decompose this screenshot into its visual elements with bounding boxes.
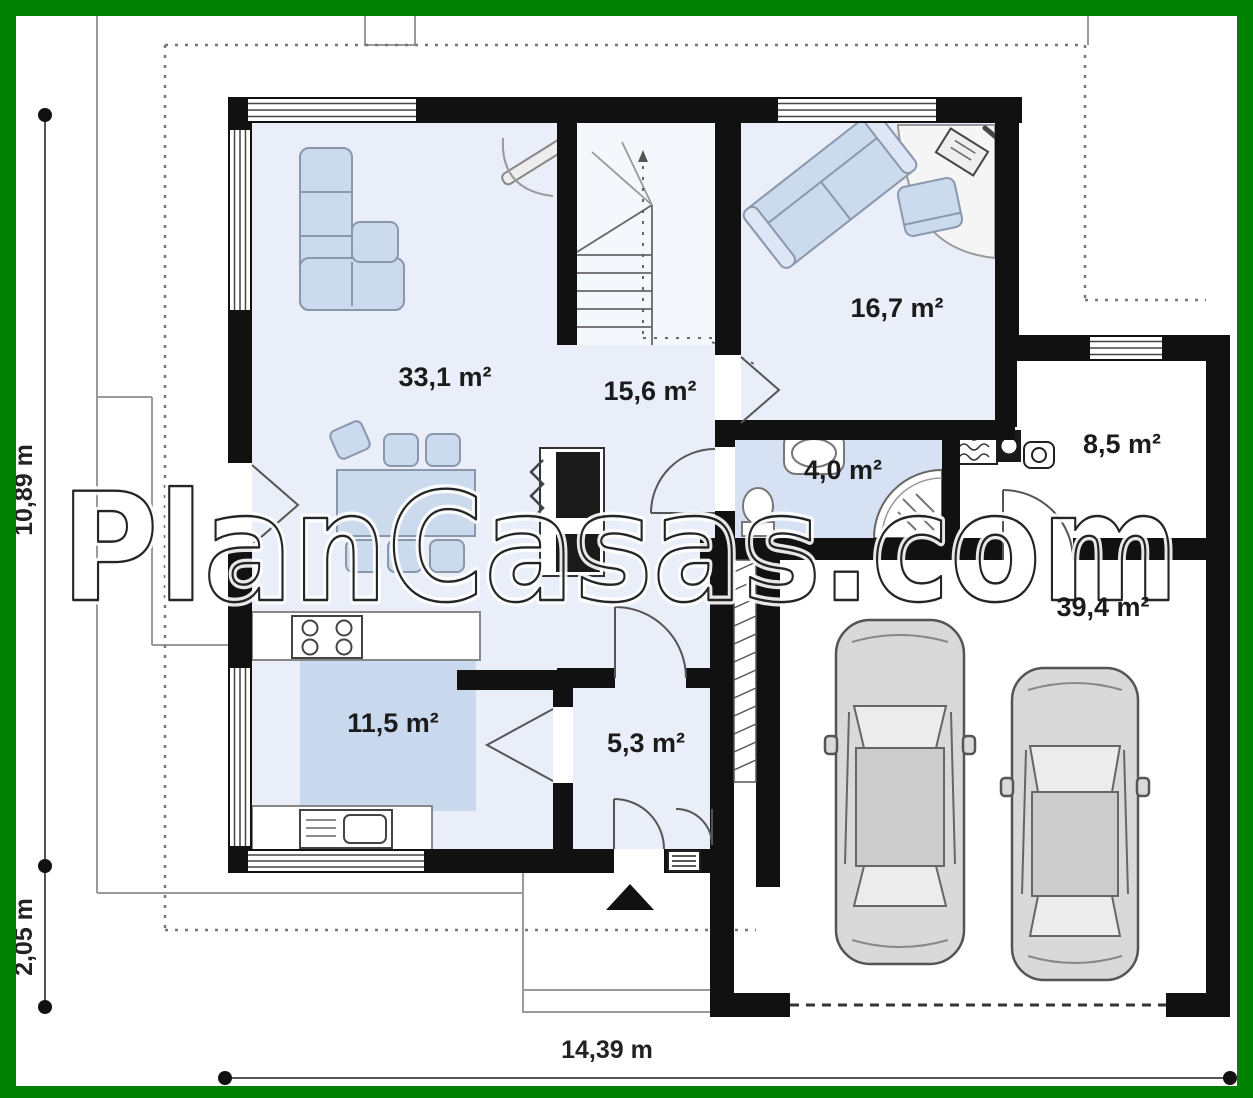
window-storage [1090,337,1162,359]
floor-plan-page: PlanCasas.com PlanCasas.com 33,1 m² 15,6… [0,0,1253,1098]
label-storage: 8,5 m² [1083,429,1161,459]
garage [790,620,1166,1005]
label-living-dining: 33,1 m² [398,362,491,392]
label-salon: 16,7 m² [850,293,943,323]
window-living-top [248,99,416,121]
watermark-text: PlanCasas.com [61,462,1179,636]
car-1 [825,620,975,964]
label-bathroom: 4,0 m² [804,455,882,485]
window-salon-top [778,99,936,121]
window-living-left [230,130,250,310]
label-garage: 39,4 m² [1056,592,1149,622]
label-hall: 15,6 m² [603,376,696,406]
salon-armchair [896,177,963,238]
entrance-marker [606,851,700,910]
car-2 [1001,668,1149,980]
window-kitchen-left [230,668,250,846]
entrance-arrow-icon [606,884,654,910]
kitchen-sink [300,810,392,848]
dim-width-total: 14,39 m [561,1036,653,1064]
label-kitchen: 11,5 m² [347,708,439,738]
watermark: PlanCasas.com PlanCasas.com [61,462,1179,636]
label-entry-hall: 5,3 m² [607,728,685,758]
window-kitchen-bottom [248,851,424,871]
